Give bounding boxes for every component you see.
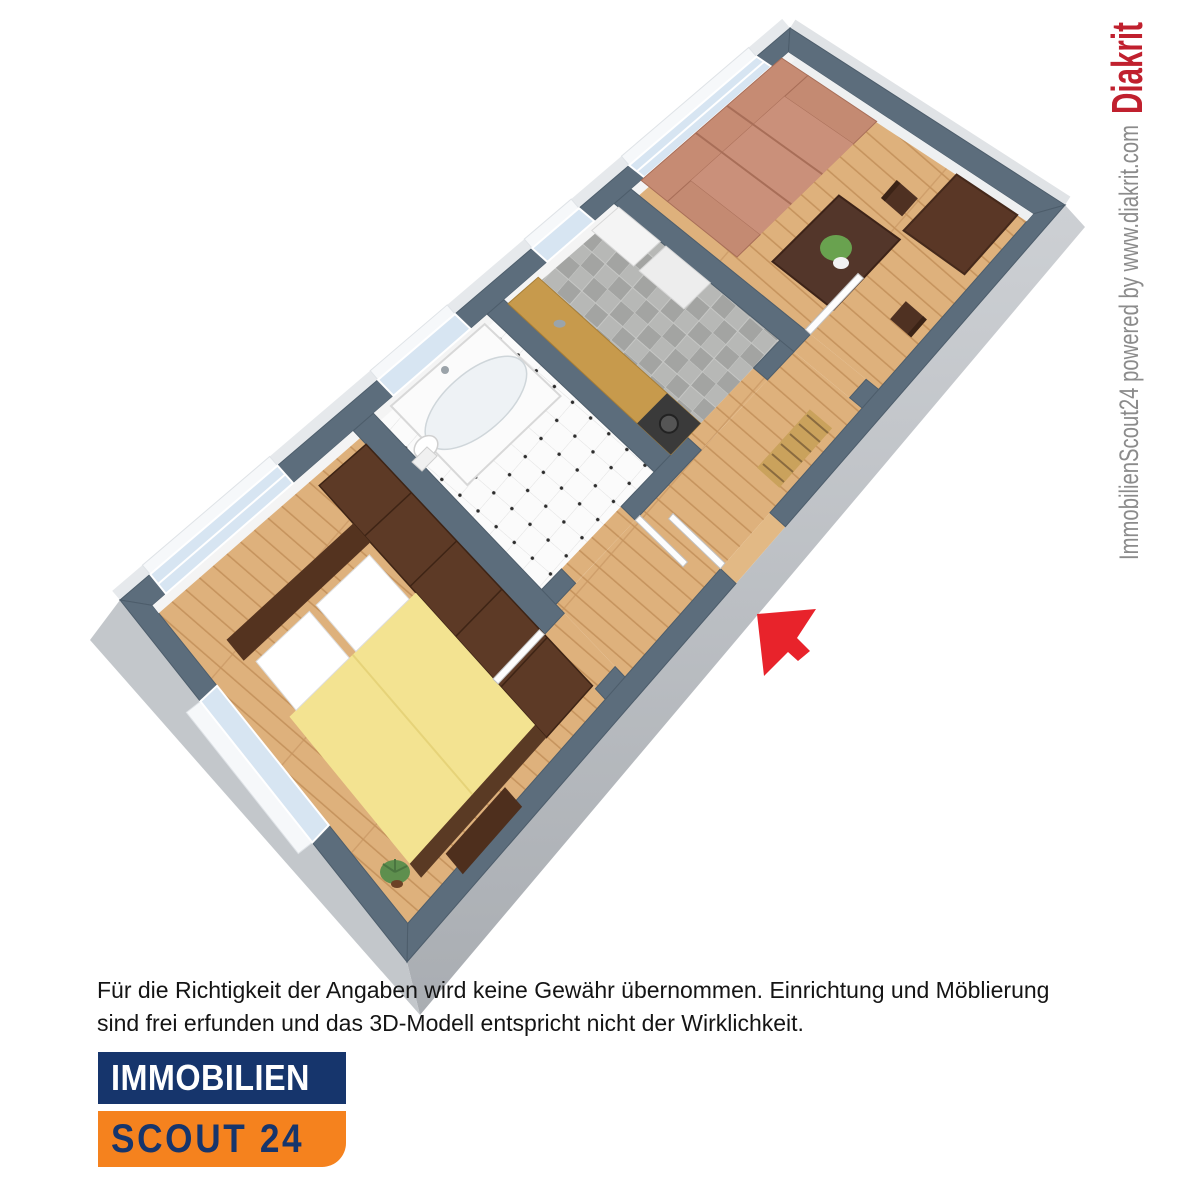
logo-divider xyxy=(98,1104,346,1111)
disclaimer-line-1: Für die Richtigkeit der Angaben wird kei… xyxy=(97,974,1157,1007)
coffee-table-plant xyxy=(820,235,852,261)
floorplan-image: ImmobilienScout24 powered by www.diakrit… xyxy=(0,0,1200,1200)
immobilienscout24-logo: IMMOBILIEN SCOUT 24 xyxy=(98,1052,346,1167)
plant-pot xyxy=(391,880,403,888)
logo-immobilien-text: IMMOBILIEN xyxy=(111,1057,310,1099)
watermark: ImmobilienScout24 powered by www.diakrit… xyxy=(1103,22,1152,560)
logo-top-bar: IMMOBILIEN xyxy=(98,1052,346,1104)
disclaimer: Für die Richtigkeit der Angaben wird kei… xyxy=(97,974,1157,1040)
plant-vase xyxy=(833,257,849,269)
entrance-arrow xyxy=(757,609,816,676)
counter-sink xyxy=(554,320,566,328)
logo-bottom-bar: SCOUT 24 xyxy=(98,1111,346,1167)
disclaimer-line-2: sind frei erfunden und das 3D-Modell ent… xyxy=(97,1007,1157,1040)
bathtub-faucet xyxy=(441,366,449,374)
logo-scout24-text: SCOUT 24 xyxy=(111,1117,304,1162)
stove-burner xyxy=(660,415,678,433)
watermark-brand: Diakrit xyxy=(1103,22,1152,114)
watermark-powered-by: ImmobilienScout24 powered by www.diakrit… xyxy=(1114,125,1144,560)
